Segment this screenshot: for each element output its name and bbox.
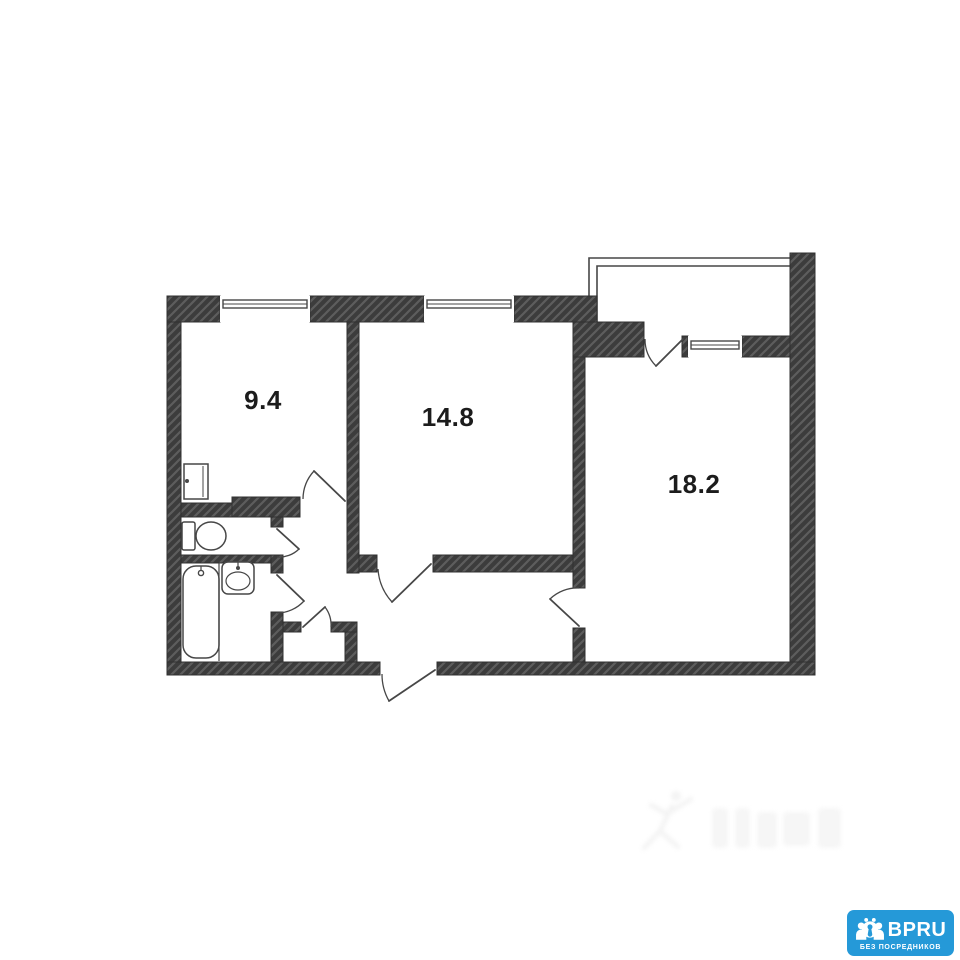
- wall-segment: [167, 296, 220, 322]
- wall-segment: [437, 662, 815, 675]
- watermark-letter-blob: [712, 808, 728, 848]
- watermark-figure-head: [671, 791, 681, 801]
- wall-segment: [232, 497, 300, 517]
- wall-segment: [433, 555, 573, 572]
- toilet-bowl: [196, 522, 226, 550]
- floor-plan-page: 9.414.818.2 BPRU БЕЗ ПОСРЕДНИКОВ: [0, 0, 960, 960]
- wall-segment: [573, 628, 585, 662]
- balcony-line: [589, 258, 790, 322]
- room-area-label: 9.4: [244, 385, 282, 415]
- watermark-figure-leg: [660, 831, 678, 847]
- people-group-keyhole-icon: [855, 917, 885, 942]
- bathroom-door-swing-arc: [277, 601, 304, 613]
- windows-group: [220, 296, 742, 357]
- badge-brand-text: BPRU: [888, 920, 947, 940]
- badge-tagline-text: БЕЗ ПОСРЕДНИКОВ: [860, 944, 941, 951]
- wall-segment: [331, 622, 357, 632]
- room-9-door-swing-arc: [303, 471, 314, 499]
- closet-door-swing-arc: [325, 607, 331, 627]
- watermark-letter-blob: [783, 812, 810, 846]
- room-14-door-swing-arc: [378, 569, 392, 602]
- wall-segment: [271, 612, 283, 662]
- watermark-letter-blob: [757, 812, 777, 848]
- watermark-figure-leg: [644, 831, 660, 848]
- cabinet-handle: [185, 479, 189, 483]
- balcony-line: [597, 266, 790, 322]
- wall-segment: [790, 253, 815, 675]
- bathroom-door-leaf: [277, 575, 304, 601]
- room-9-door-leaf: [314, 471, 345, 501]
- room-18-door-leaf: [550, 599, 579, 626]
- wc-door-leaf: [277, 529, 299, 549]
- wall-segment: [167, 296, 181, 675]
- room-labels-group: 9.414.818.2: [244, 385, 720, 499]
- photo-watermark: [644, 791, 841, 848]
- watermark-letter-blob: [735, 808, 750, 848]
- wall-segment: [271, 517, 283, 527]
- wall-segment: [359, 555, 377, 572]
- room-area-label: 18.2: [668, 469, 721, 499]
- wall-segment: [742, 336, 790, 357]
- bathtub-icon: [183, 566, 219, 658]
- wall-segment: [345, 632, 357, 662]
- entrance-door-swing-arc: [382, 674, 389, 701]
- doors-group: [277, 339, 683, 701]
- toilet-tank: [182, 522, 195, 550]
- bpru-badge: BPRU БЕЗ ПОСРЕДНИКОВ: [847, 910, 954, 956]
- wall-segment: [167, 662, 380, 675]
- wall-segment: [573, 322, 644, 357]
- room-18-door-swing-arc: [550, 588, 579, 599]
- balcony-door-leaf: [656, 339, 683, 366]
- wall-segment: [514, 296, 597, 322]
- watermark-letter-blob: [818, 808, 841, 848]
- room-14-door-leaf: [392, 564, 431, 602]
- wall-segment: [573, 357, 585, 588]
- balcony-door-swing-arc: [645, 339, 656, 366]
- watermark-figure-arm: [651, 805, 667, 814]
- balcony-outline: [589, 258, 790, 322]
- sink-faucet: [236, 566, 240, 570]
- floor-plan-drawing: 9.414.818.2: [0, 0, 960, 960]
- wall-segment: [181, 503, 232, 517]
- wall-segment: [283, 622, 301, 632]
- closet-door-leaf: [303, 607, 325, 627]
- wall-segment: [347, 322, 359, 573]
- entrance-door-leaf: [389, 670, 435, 701]
- room-area-label: 14.8: [422, 402, 475, 432]
- wall-segment: [310, 296, 424, 322]
